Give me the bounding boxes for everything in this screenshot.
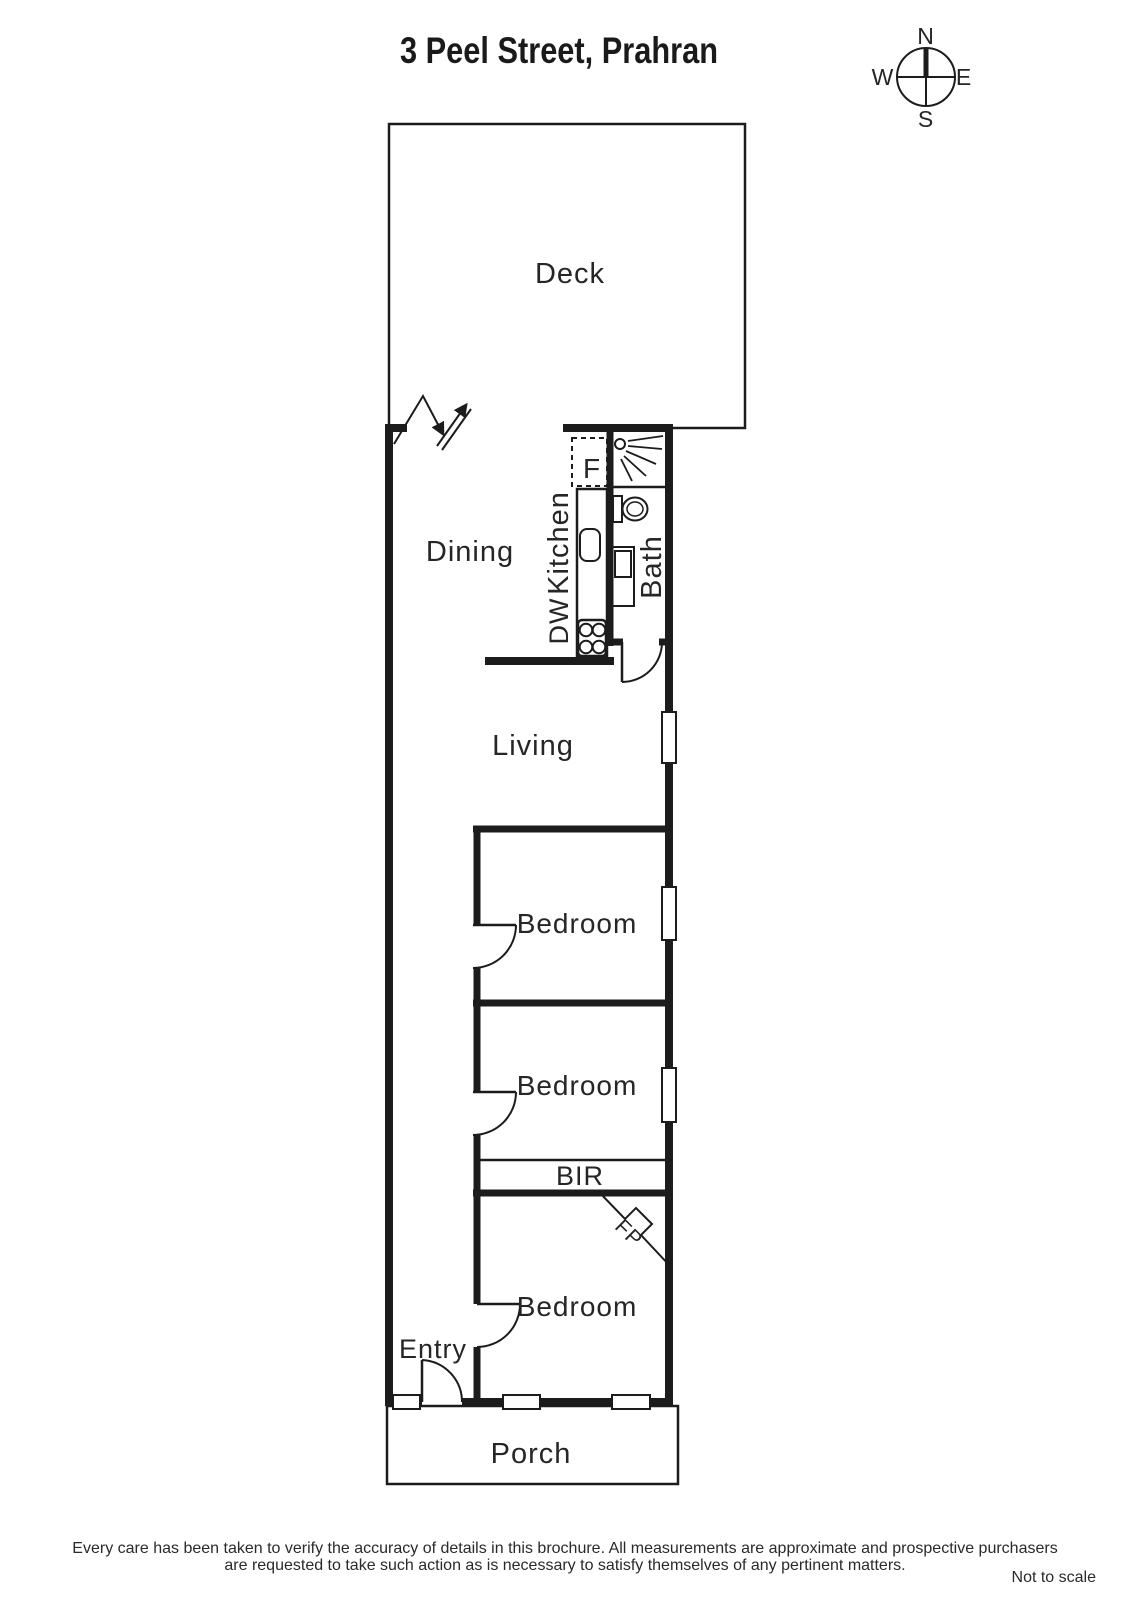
toilet-symbol [613, 496, 648, 522]
porch-label: Porch [491, 1438, 572, 1470]
living-window [662, 712, 676, 763]
page-title: 3 Peel Street, Prahran [400, 30, 718, 71]
kitchen-label: Kitchen [543, 491, 575, 595]
living-label: Living [492, 730, 574, 762]
fireplace-label: FP [610, 1215, 647, 1252]
vanity-symbol [612, 547, 634, 606]
bedroom-2-door [473, 1092, 516, 1135]
entry-window [393, 1395, 420, 1409]
bath-label: Bath [636, 535, 668, 599]
entry-door [422, 1360, 462, 1402]
compass-north-label: N [917, 23, 935, 49]
dishwasher-label: DW [544, 598, 574, 645]
bedroom-1-label: Bedroom [517, 908, 638, 939]
shower-symbol [615, 436, 663, 481]
floorplan-page: 3 Peel Street, Prahran N S W E [0, 0, 1131, 1600]
fridge-label: F [583, 453, 601, 484]
bedroom-2-window [662, 1068, 676, 1122]
deck-access-arrows [394, 396, 471, 450]
compass-east-label: E [956, 64, 972, 90]
disclaimer-line-1: Every care has been taken to verify the … [72, 1540, 1057, 1557]
bir-label: BIR [556, 1161, 604, 1191]
bedroom-3-door [477, 1304, 520, 1347]
entry-label: Entry [399, 1334, 467, 1364]
dining-label: Dining [426, 536, 514, 568]
bedroom-1-door [473, 925, 516, 968]
deck-label: Deck [535, 258, 605, 290]
bedroom-2-label: Bedroom [517, 1070, 638, 1101]
front-window-1 [503, 1395, 540, 1409]
compass-rose: N S W E [872, 23, 973, 132]
front-window-2 [612, 1395, 650, 1409]
compass-south-label: S [918, 106, 934, 132]
disclaimer-line-2: are requested to take such action as is … [224, 1557, 905, 1574]
sink-symbol [580, 529, 600, 561]
bedroom-3-label: Bedroom [517, 1291, 638, 1322]
compass-west-label: W [872, 64, 895, 90]
bedroom-1-window [662, 887, 676, 940]
stove-symbol [578, 620, 606, 656]
scale-note: Not to scale [1012, 1569, 1097, 1586]
bath-door [622, 642, 662, 682]
floor-plan: 3 Peel Street, Prahran N S W E [0, 0, 1131, 1600]
